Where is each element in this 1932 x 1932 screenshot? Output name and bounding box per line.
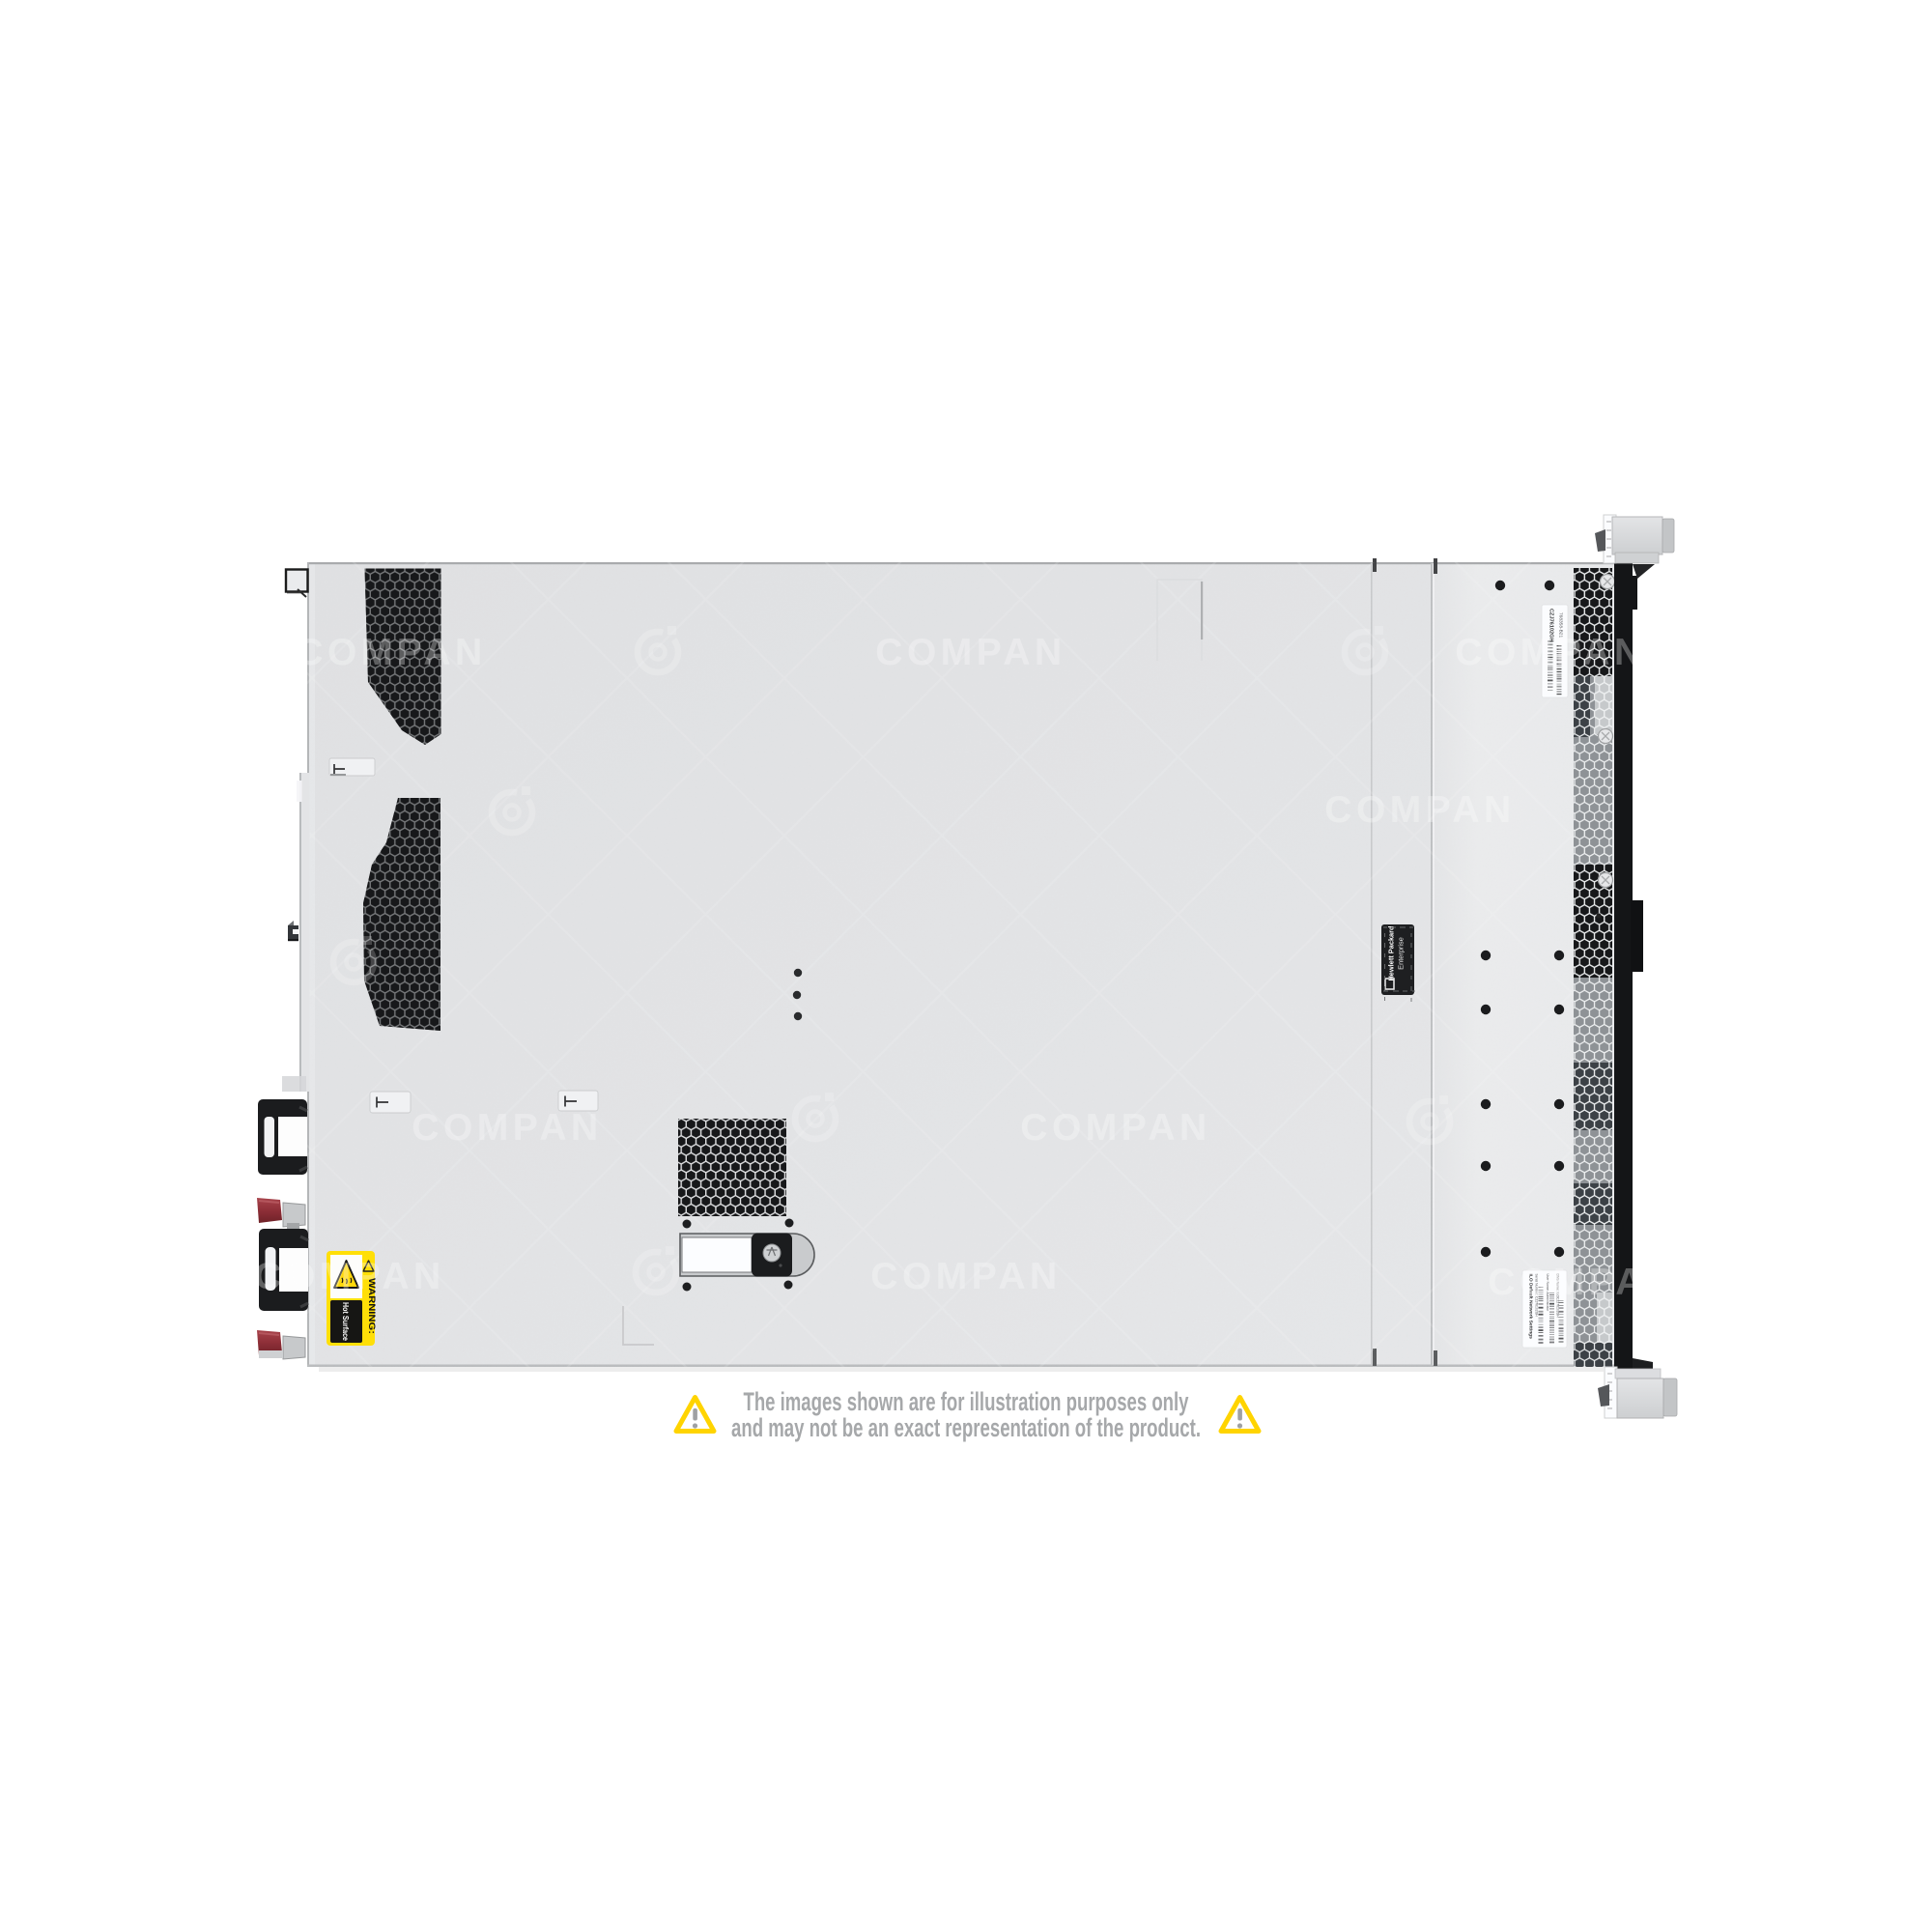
svg-text:COMPAN: COMPAN xyxy=(875,632,1065,673)
svg-text:and may not be an exact repres: and may not be an exact representation o… xyxy=(731,1413,1201,1442)
svg-text:COMPAN: COMPAN xyxy=(412,1107,602,1149)
svg-text:COMPAN: COMPAN xyxy=(296,632,486,673)
svg-text:COMPAN: COMPAN xyxy=(254,1256,444,1297)
svg-text:COMPAN: COMPAN xyxy=(1324,789,1515,831)
svg-text:Hot Surface: Hot Surface xyxy=(341,1302,350,1341)
svg-text:Hewlett Packard: Hewlett Packard xyxy=(1387,925,1396,981)
svg-text:COMPAN: COMPAN xyxy=(870,1256,1061,1297)
svg-text:Enterprise: Enterprise xyxy=(1397,937,1406,970)
svg-text:The images shown are for illus: The images shown are for illustration pu… xyxy=(744,1387,1189,1416)
svg-text:COMPAN: COMPAN xyxy=(1488,1262,1678,1303)
svg-text:COMPAN: COMPAN xyxy=(1020,1107,1210,1149)
svg-text:COMPAN: COMPAN xyxy=(1455,632,1645,673)
